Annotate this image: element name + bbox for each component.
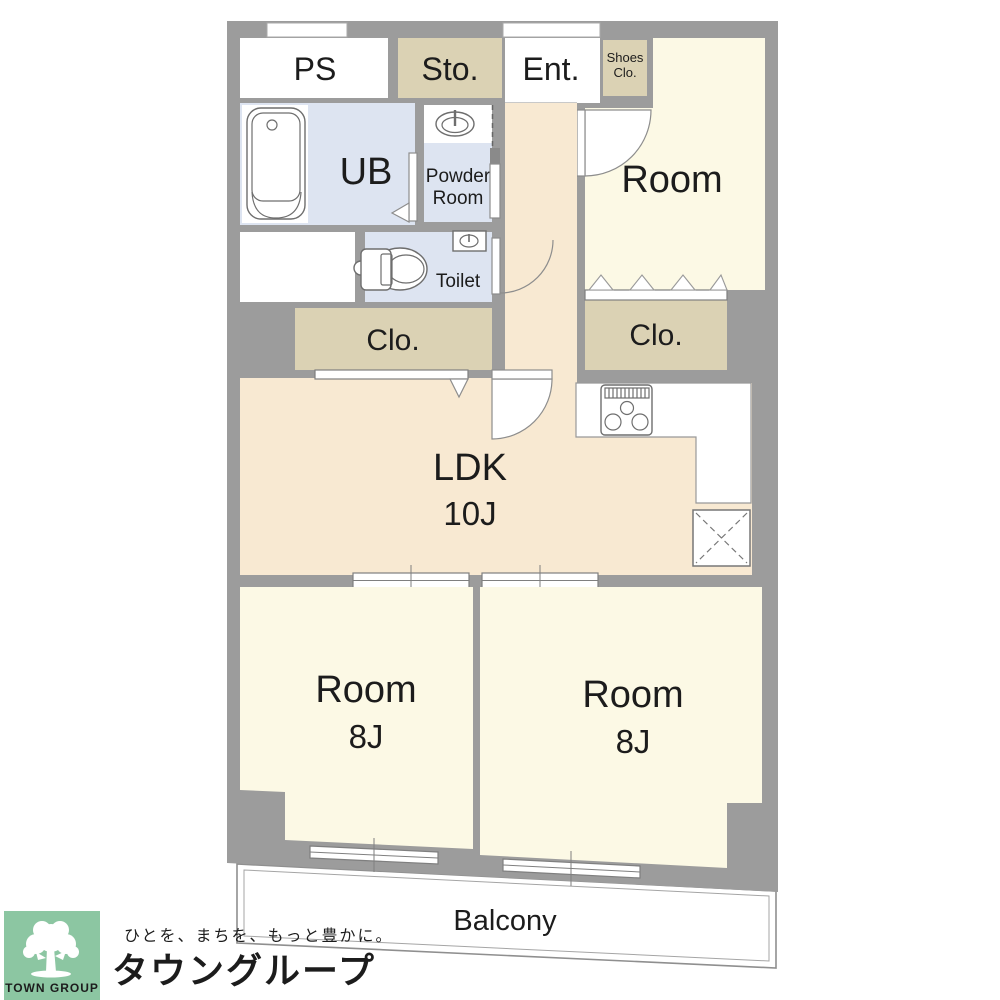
shoes-closet-label-line1: Shoes — [607, 50, 644, 65]
entrance-label: Ent. — [523, 51, 580, 87]
shoes-closet-label-line2: Clo. — [613, 65, 636, 80]
door-leaf — [577, 110, 585, 176]
room-storage: Sto. — [398, 38, 502, 98]
bedroom-bottom-right-size: 8J — [616, 723, 651, 760]
ldk-size-label: 10J — [443, 495, 496, 532]
floor-plan-image: PS Sto. Ent. Shoes Clo. Room UB — [0, 0, 1000, 1000]
bedroom-top-right-label: Room — [621, 159, 722, 201]
bathtub-icon — [247, 108, 305, 219]
toilet-door-leaf — [492, 238, 500, 294]
powder-room-label-line1: Powder — [426, 166, 491, 187]
bath-door-leaf — [409, 153, 417, 221]
room-ldk: LDK 10J — [240, 370, 752, 575]
toilet-icon — [354, 248, 427, 290]
powder-room-label-line2: Room — [433, 188, 484, 209]
unit-bath-label: UB — [340, 151, 393, 193]
floor-plan-canvas: PS Sto. Ent. Shoes Clo. Room UB — [0, 0, 1000, 1000]
brand-company-name: タウングループ — [112, 950, 376, 991]
room-bedroom-bottom-right: Room 8J — [480, 587, 762, 886]
bedroom-bottom-left-label: Room — [315, 669, 416, 711]
entrance-door-notch — [503, 23, 600, 37]
toilet-label: Toilet — [436, 271, 481, 292]
sliding-door-icon — [315, 370, 468, 379]
room-ps: PS — [240, 38, 388, 98]
bedroom-bottom-left-size: 8J — [349, 718, 384, 755]
gas-stove-icon — [601, 385, 652, 435]
closet-bedroom-label: Clo. — [629, 319, 682, 352]
corridor-floor — [505, 103, 577, 378]
wall-stub — [490, 148, 500, 164]
kitchen-wall — [577, 370, 752, 383]
ps-label: PS — [294, 51, 337, 87]
room-entrance: Ent. — [505, 38, 600, 103]
ps-window-notch — [267, 23, 347, 37]
logo-square-text: TOWN GROUP — [5, 981, 99, 995]
utility-space — [240, 232, 355, 302]
ldk-label: LDK — [433, 447, 507, 489]
powder-door-leaf — [490, 164, 500, 218]
brand-tagline: ひとを、まちを、もっと豊かに。 — [124, 927, 394, 945]
folding-closet-door-icon — [585, 290, 727, 300]
room-unit-bath: UB — [240, 103, 417, 225]
room-closet-hall: Clo. — [295, 308, 492, 370]
storage-label: Sto. — [422, 51, 479, 87]
bedroom-bottom-right-label: Room — [582, 674, 683, 716]
hand-sink-icon — [453, 231, 486, 251]
ldk-door-leaf — [492, 370, 552, 379]
closet-hall-label: Clo. — [366, 324, 419, 357]
refrigerator-space-icon — [693, 510, 750, 566]
room-powder: Powder Room — [424, 105, 500, 222]
room-shoes-closet: Shoes Clo. — [603, 40, 647, 96]
balcony-label: Balcony — [453, 905, 557, 937]
